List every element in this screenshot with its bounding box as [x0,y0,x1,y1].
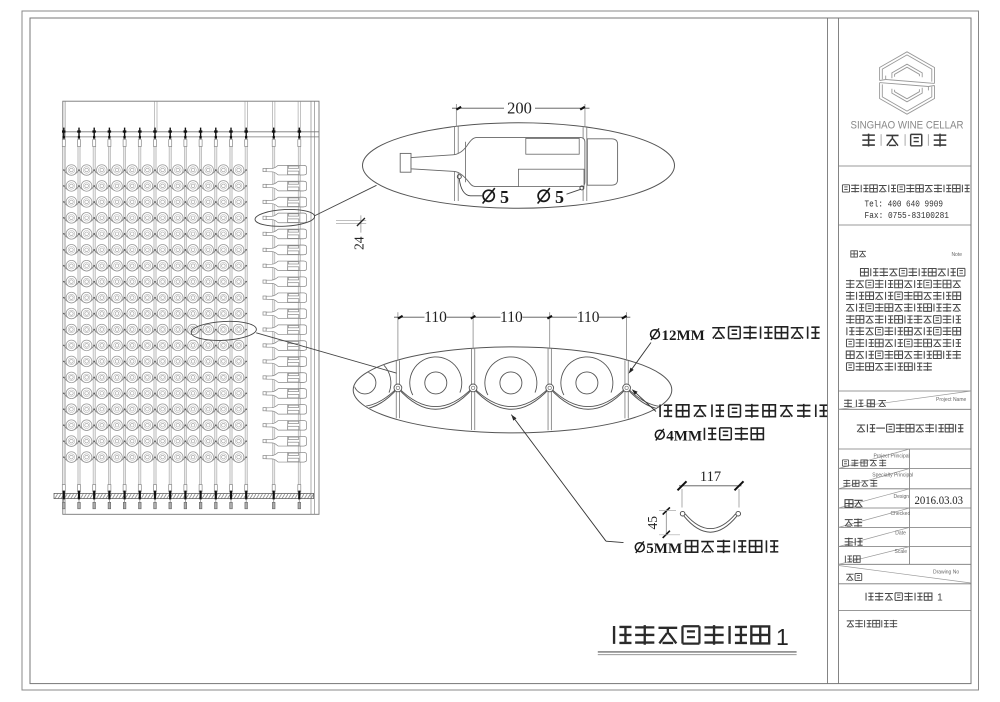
svg-text:SINGHAO WINE CELLAR: SINGHAO WINE CELLAR [851,119,964,131]
svg-text:1: 1 [937,593,943,604]
svg-text:Checked: Checked [891,511,911,517]
svg-text:5: 5 [500,187,509,207]
svg-text:110: 110 [424,309,447,326]
svg-text:12MM: 12MM [662,328,705,344]
svg-text:117: 117 [700,469,721,485]
svg-text:Drawing No: Drawing No [933,570,959,576]
svg-text:Date: Date [895,530,906,536]
svg-text:Fax: 0755-83100281: Fax: 0755-83100281 [865,211,950,221]
svg-text:2016.03.03: 2016.03.03 [915,495,964,507]
svg-text:110: 110 [577,309,600,326]
svg-text:Tel: 400 640 9909: Tel: 400 640 9909 [865,200,944,210]
svg-text:200: 200 [507,99,532,118]
svg-text:45: 45 [645,516,660,530]
svg-text:5: 5 [555,187,564,207]
svg-text:Project Principal: Project Principal [874,453,910,459]
svg-text:Design: Design [894,494,910,500]
svg-text:Note: Note [951,252,962,258]
svg-text:Project Name: Project Name [936,397,967,403]
svg-text:Specialty Principal: Specialty Principal [872,472,913,478]
svg-text:4MM: 4MM [666,428,702,444]
svg-text:Scale: Scale [895,549,908,555]
svg-text:1: 1 [776,624,789,650]
svg-text:110: 110 [500,309,523,326]
svg-text:5MM: 5MM [646,541,682,557]
svg-text:24: 24 [352,236,367,250]
